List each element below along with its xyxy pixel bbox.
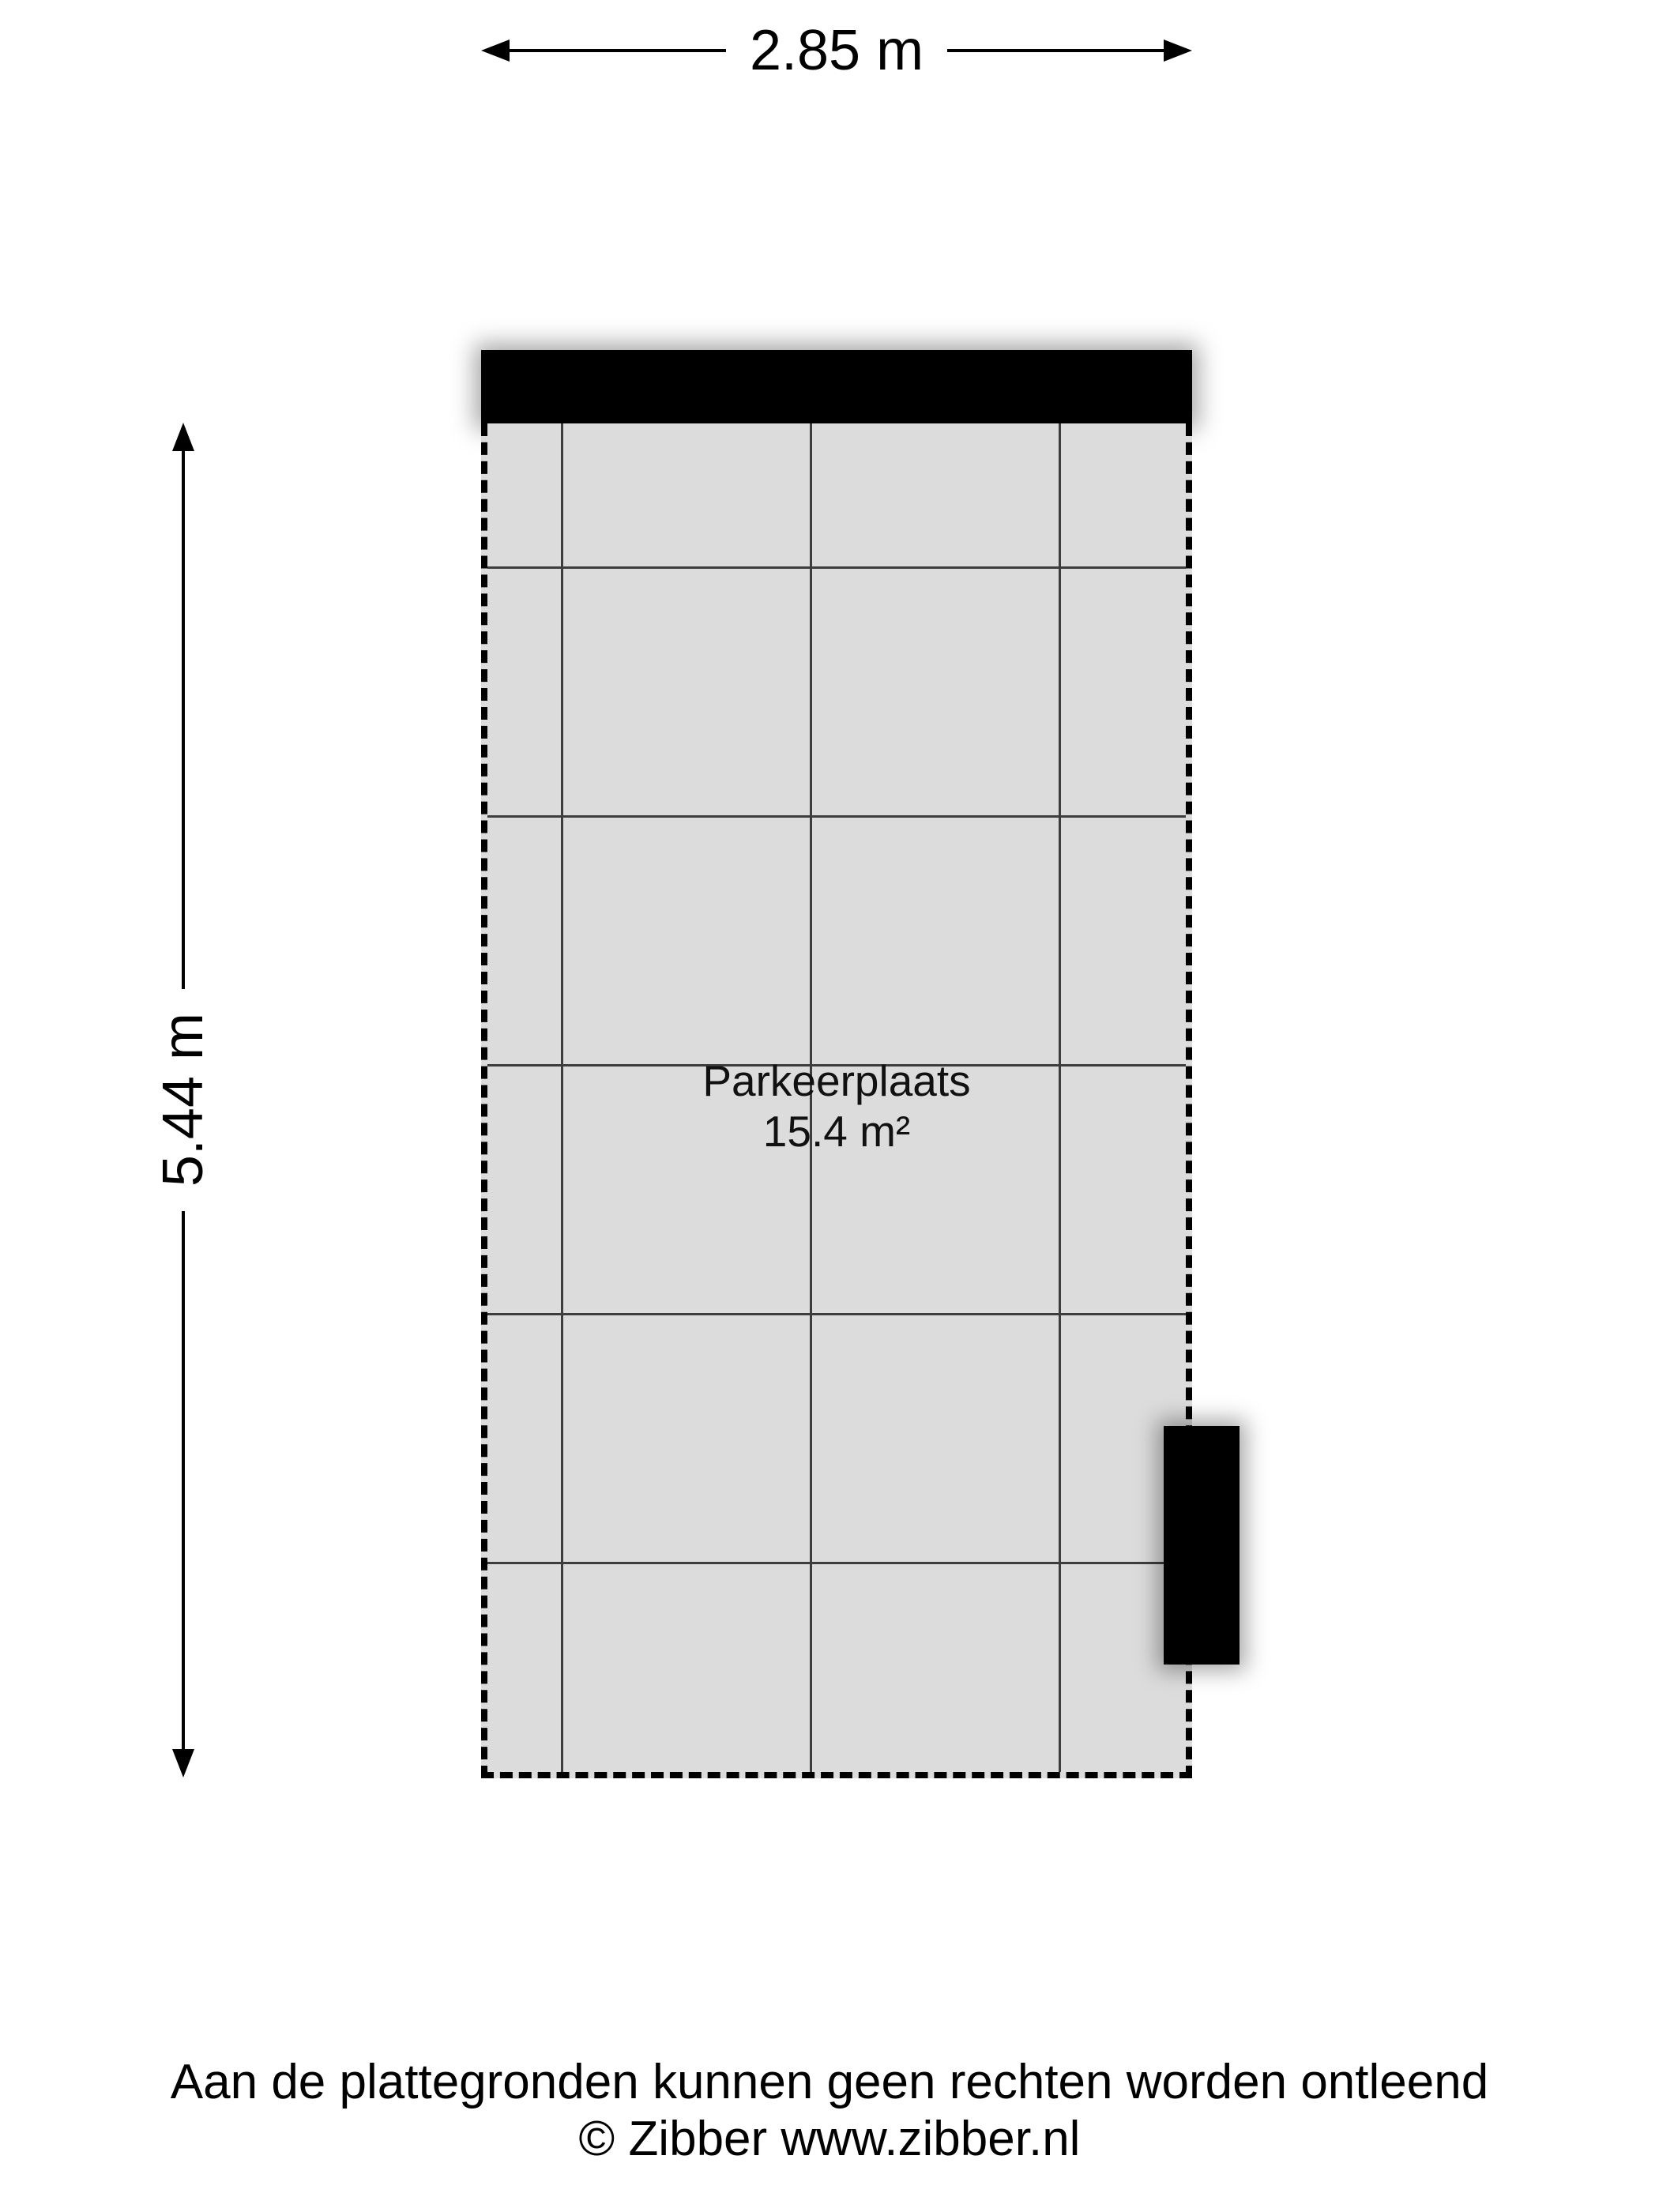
disclaimer-text: Aan de plattegronden kunnen geen rechten… xyxy=(0,2054,1659,2111)
width-dimension: 2.85 m xyxy=(481,17,1192,84)
footer: Aan de plattegronden kunnen geen rechten… xyxy=(0,2054,1659,2168)
room-label: Parkeerplaats 15.4 m² xyxy=(487,1055,1186,1157)
room-area: 15.4 m² xyxy=(487,1106,1186,1157)
room-name: Parkeerplaats xyxy=(487,1055,1186,1106)
grid-line-horizontal xyxy=(487,815,1186,818)
grid-line-horizontal xyxy=(487,566,1186,569)
dimension-line xyxy=(947,49,1164,52)
floor-plan-page: 2.85 m 5.44 m Parkeerplaats 15.4 m² Aan … xyxy=(0,0,1659,2212)
dimension-line xyxy=(510,49,726,52)
dimension-line xyxy=(182,1211,185,1749)
height-dimension-label: 5.44 m xyxy=(151,989,216,1210)
wall-segment-right xyxy=(1164,1426,1240,1665)
width-dimension-label: 2.85 m xyxy=(726,18,947,83)
copyright-text: © Zibber www.zibber.nl xyxy=(0,2111,1659,2168)
parking-space-area: Parkeerplaats 15.4 m² xyxy=(481,423,1192,1778)
height-dimension: 5.44 m xyxy=(152,423,215,1777)
wall-top xyxy=(481,350,1192,423)
dimension-line xyxy=(182,451,185,989)
arrow-down-icon xyxy=(172,1749,194,1777)
arrow-up-icon xyxy=(172,423,194,451)
arrow-left-icon xyxy=(481,39,510,62)
grid-line-horizontal xyxy=(487,1313,1186,1315)
grid-line-horizontal xyxy=(487,1562,1186,1564)
arrow-right-icon xyxy=(1164,39,1192,62)
